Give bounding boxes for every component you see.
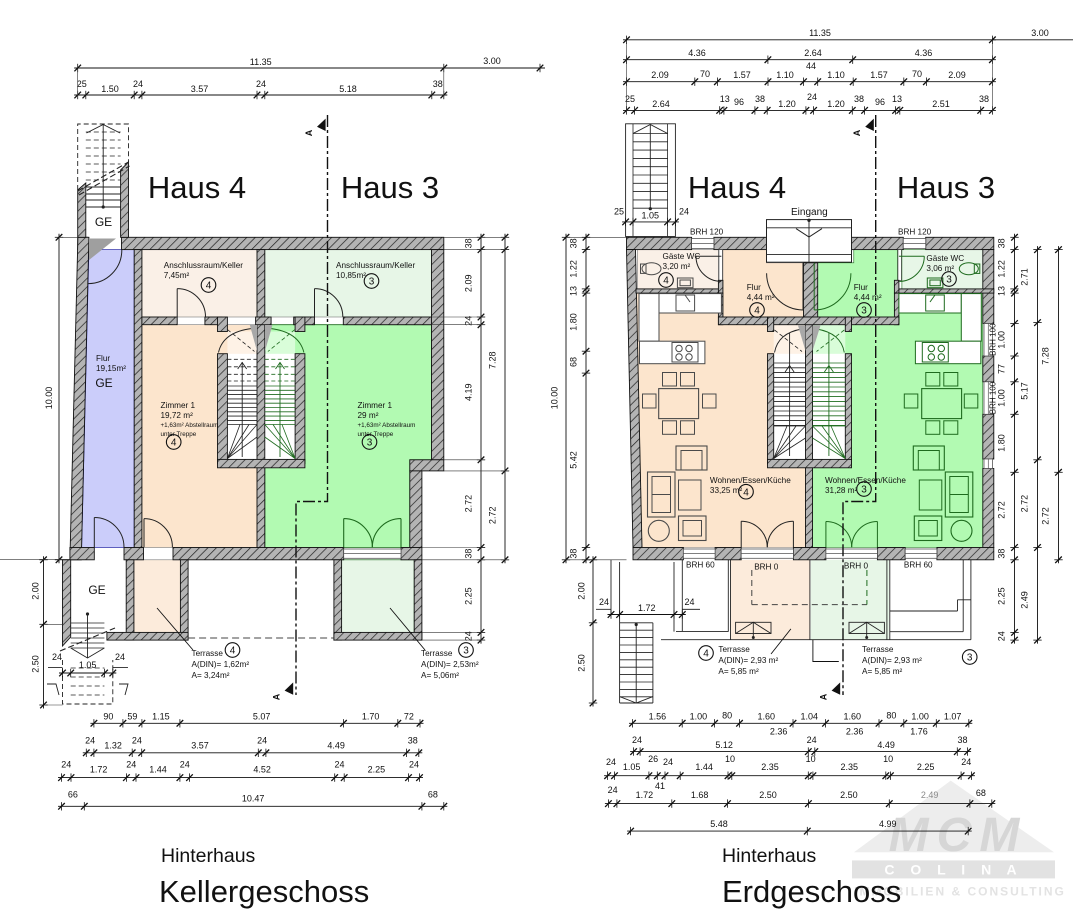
svg-text:2.72: 2.72: [1041, 507, 1051, 525]
svg-text:13: 13: [569, 286, 579, 296]
svg-text:24: 24: [115, 652, 125, 662]
svg-text:1.00: 1.00: [911, 711, 929, 721]
svg-text:2.71: 2.71: [1020, 268, 1030, 286]
svg-text:24: 24: [632, 735, 642, 745]
svg-text:2.72: 2.72: [464, 495, 474, 513]
svg-text:1.07: 1.07: [944, 711, 962, 721]
svg-text:2.09: 2.09: [464, 275, 474, 293]
svg-text:4: 4: [743, 487, 749, 498]
svg-text:10: 10: [806, 754, 816, 764]
svg-text:4: 4: [754, 306, 760, 317]
svg-text:BRH 60: BRH 60: [904, 561, 933, 570]
svg-text:7.28: 7.28: [1041, 347, 1051, 365]
svg-text:4.49: 4.49: [327, 740, 345, 750]
svg-text:1.05: 1.05: [623, 762, 641, 772]
svg-text:10.00: 10.00: [550, 387, 560, 410]
svg-text:2.00: 2.00: [31, 582, 41, 600]
svg-text:10,85m²: 10,85m²: [336, 271, 366, 280]
svg-text:GE: GE: [95, 215, 112, 229]
svg-text:1.68: 1.68: [691, 790, 709, 800]
svg-text:Hinterhaus: Hinterhaus: [161, 845, 256, 867]
svg-text:66: 66: [68, 789, 78, 799]
svg-text:38: 38: [957, 735, 967, 745]
svg-text:38: 38: [464, 549, 474, 559]
svg-text:24: 24: [608, 785, 618, 795]
svg-text:68: 68: [976, 788, 986, 798]
svg-text:80: 80: [886, 710, 896, 720]
svg-text:1.56: 1.56: [649, 711, 667, 721]
svg-text:1.22: 1.22: [569, 260, 579, 278]
svg-text:3.00: 3.00: [1031, 28, 1049, 38]
svg-text:2.50: 2.50: [31, 655, 41, 673]
svg-text:38: 38: [755, 94, 765, 104]
svg-text:2.64: 2.64: [652, 99, 670, 109]
svg-text:Zimmer 1: Zimmer 1: [358, 401, 393, 410]
svg-text:GE: GE: [95, 376, 112, 390]
svg-text:GE: GE: [88, 583, 105, 597]
svg-text:26: 26: [648, 754, 658, 764]
svg-text:4.52: 4.52: [253, 765, 271, 775]
svg-text:19,72 m²: 19,72 m²: [161, 411, 194, 420]
svg-text:80: 80: [722, 710, 732, 720]
svg-text:24: 24: [679, 206, 689, 216]
svg-text:1.44: 1.44: [149, 765, 167, 775]
svg-text:38: 38: [464, 238, 474, 248]
svg-text:Haus 4: Haus 4: [688, 170, 786, 205]
svg-text:1.20: 1.20: [827, 99, 845, 109]
svg-text:Gäste WC: Gäste WC: [926, 254, 964, 263]
svg-text:2.25: 2.25: [997, 587, 1007, 605]
svg-text:Flur: Flur: [854, 283, 868, 292]
svg-text:24: 24: [997, 631, 1007, 641]
svg-text:A(DIN)= 1,62m²: A(DIN)= 1,62m²: [192, 660, 250, 669]
svg-text:1.60: 1.60: [844, 711, 862, 721]
svg-text:3.00: 3.00: [483, 56, 501, 66]
svg-text:38: 38: [997, 549, 1007, 559]
svg-text:1.22: 1.22: [997, 260, 1007, 278]
svg-text:2.64: 2.64: [804, 48, 822, 58]
svg-text:+1,63m² Abstellraum: +1,63m² Abstellraum: [358, 422, 416, 429]
svg-text:38: 38: [979, 94, 989, 104]
svg-text:BRH 0: BRH 0: [754, 563, 779, 572]
svg-text:1.80: 1.80: [997, 434, 1007, 452]
svg-text:2.35: 2.35: [841, 762, 859, 772]
svg-text:Eingang: Eingang: [791, 207, 828, 218]
svg-text:1.00: 1.00: [997, 331, 1007, 349]
svg-text:24: 24: [334, 760, 344, 770]
svg-text:Erdgeschoss: Erdgeschoss: [722, 874, 901, 909]
svg-text:3.57: 3.57: [191, 740, 209, 750]
svg-text:24: 24: [52, 652, 62, 662]
svg-text:A(DIN)= 2,93 m²: A(DIN)= 2,93 m²: [718, 656, 778, 665]
svg-text:1.44: 1.44: [695, 762, 713, 772]
svg-text:Hinterhaus: Hinterhaus: [722, 845, 817, 867]
svg-text:68: 68: [569, 357, 579, 367]
svg-text:Haus 3: Haus 3: [341, 170, 439, 205]
svg-text:BRH 120: BRH 120: [898, 228, 932, 237]
svg-text:1.72: 1.72: [90, 765, 108, 775]
svg-text:4.49: 4.49: [877, 740, 895, 750]
svg-text:3: 3: [369, 277, 375, 288]
svg-text:2.36: 2.36: [846, 727, 864, 737]
svg-text:10: 10: [725, 754, 735, 764]
svg-text:5.42: 5.42: [569, 451, 579, 469]
svg-text:1.72: 1.72: [638, 603, 656, 613]
svg-text:+1,63m² Abstellraum: +1,63m² Abstellraum: [161, 422, 219, 429]
svg-text:unter Treppe: unter Treppe: [358, 431, 394, 438]
svg-text:4,44 m²: 4,44 m²: [747, 293, 775, 302]
svg-text:24: 24: [61, 760, 71, 770]
svg-text:1.05: 1.05: [642, 210, 660, 220]
svg-text:2.51: 2.51: [932, 99, 950, 109]
svg-text:13: 13: [892, 94, 902, 104]
svg-text:1.50: 1.50: [101, 84, 119, 94]
svg-text:24: 24: [180, 760, 190, 770]
svg-text:5.07: 5.07: [253, 711, 271, 721]
svg-text:Zimmer 1: Zimmer 1: [161, 401, 196, 410]
svg-text:1.76: 1.76: [910, 727, 928, 737]
svg-text:4.36: 4.36: [915, 48, 933, 58]
svg-text:41: 41: [655, 781, 665, 791]
svg-text:11.35: 11.35: [250, 57, 272, 67]
svg-text:2.49: 2.49: [1020, 591, 1030, 609]
svg-text:2.72: 2.72: [1020, 495, 1030, 513]
svg-text:Kellergeschoss: Kellergeschoss: [159, 874, 369, 909]
svg-text:2.50: 2.50: [577, 654, 587, 672]
svg-text:70: 70: [700, 69, 710, 79]
svg-text:2.25: 2.25: [368, 765, 386, 775]
svg-text:MCM: MCM: [889, 809, 1028, 862]
svg-text:Haus 3: Haus 3: [897, 170, 995, 205]
svg-text:2.35: 2.35: [761, 762, 779, 772]
svg-text:3: 3: [946, 275, 952, 286]
svg-text:24: 24: [599, 597, 609, 607]
svg-text:33,25 m²: 33,25 m²: [710, 486, 743, 495]
svg-text:2.25: 2.25: [464, 587, 474, 605]
svg-text:24: 24: [256, 79, 266, 89]
svg-text:1.70: 1.70: [362, 711, 380, 721]
svg-text:A: A: [819, 693, 829, 700]
svg-text:1.15: 1.15: [152, 711, 170, 721]
svg-text:24: 24: [126, 760, 136, 770]
svg-text:10.00: 10.00: [44, 387, 54, 410]
svg-text:4.36: 4.36: [688, 48, 706, 58]
svg-text:4.19: 4.19: [464, 383, 474, 401]
svg-text:1.10: 1.10: [776, 70, 794, 80]
svg-text:38: 38: [433, 79, 443, 89]
svg-text:24: 24: [257, 735, 267, 745]
svg-text:1.05: 1.05: [79, 660, 97, 670]
svg-text:38: 38: [569, 549, 579, 559]
svg-text:C O L I N A: C O L I N A: [884, 862, 1022, 878]
svg-text:3: 3: [967, 653, 973, 664]
svg-text:2.09: 2.09: [948, 70, 966, 80]
svg-text:1.10: 1.10: [827, 70, 845, 80]
svg-text:24: 24: [807, 92, 817, 102]
svg-text:5.17: 5.17: [1020, 382, 1030, 400]
svg-text:2.36: 2.36: [770, 727, 788, 737]
svg-text:2.72: 2.72: [488, 507, 498, 525]
svg-text:Terrasse: Terrasse: [192, 649, 224, 658]
svg-text:Terrasse: Terrasse: [421, 649, 453, 658]
svg-text:4.99: 4.99: [879, 819, 897, 829]
svg-text:1.57: 1.57: [733, 70, 751, 80]
svg-text:70: 70: [912, 69, 922, 79]
svg-text:Haus 4: Haus 4: [148, 170, 246, 205]
svg-text:24: 24: [606, 757, 616, 767]
svg-text:3: 3: [463, 646, 469, 657]
svg-text:A= 5,06m²: A= 5,06m²: [421, 671, 459, 680]
svg-text:38: 38: [569, 238, 579, 248]
svg-text:3: 3: [861, 306, 867, 317]
svg-text:2.50: 2.50: [759, 790, 777, 800]
svg-text:3.57: 3.57: [191, 84, 209, 94]
svg-text:A: A: [304, 129, 314, 136]
svg-text:5.18: 5.18: [339, 84, 357, 94]
svg-text:4: 4: [171, 438, 177, 449]
svg-text:96: 96: [734, 97, 744, 107]
svg-text:Wohnen/Essen/Küche: Wohnen/Essen/Küche: [710, 476, 791, 485]
svg-text:24: 24: [409, 760, 419, 770]
svg-text:38: 38: [408, 735, 418, 745]
svg-text:2.25: 2.25: [917, 762, 935, 772]
svg-text:A(DIN)= 2,93 m²: A(DIN)= 2,93 m²: [862, 656, 922, 665]
svg-text:Anschlussraum/Keller: Anschlussraum/Keller: [164, 261, 243, 270]
svg-text:1.60: 1.60: [758, 711, 776, 721]
svg-text:Gäste WC: Gäste WC: [663, 252, 701, 261]
svg-text:2.00: 2.00: [577, 582, 587, 600]
svg-text:24: 24: [85, 735, 95, 745]
svg-text:Anschlussraum/Keller: Anschlussraum/Keller: [336, 261, 415, 270]
svg-text:A: A: [272, 693, 282, 700]
svg-text:5.12: 5.12: [715, 740, 733, 750]
svg-text:13: 13: [720, 94, 730, 104]
svg-text:44: 44: [806, 61, 816, 71]
svg-text:BRH 60: BRH 60: [686, 561, 715, 570]
svg-text:24: 24: [132, 735, 142, 745]
svg-text:19,15m²: 19,15m²: [96, 364, 126, 373]
svg-text:77: 77: [997, 364, 1007, 374]
svg-text:2.72: 2.72: [997, 501, 1007, 519]
svg-text:Terrasse: Terrasse: [718, 645, 750, 654]
svg-text:38: 38: [997, 238, 1007, 248]
svg-text:68: 68: [428, 789, 438, 799]
svg-text:2.09: 2.09: [651, 70, 669, 80]
svg-text:25: 25: [614, 206, 624, 216]
svg-text:31,28 m²: 31,28 m²: [825, 486, 858, 495]
svg-text:BRH 120: BRH 120: [690, 228, 724, 237]
svg-text:A(DIN)= 2,53m²: A(DIN)= 2,53m²: [421, 660, 479, 669]
svg-text:4: 4: [663, 276, 669, 287]
svg-text:11.35: 11.35: [809, 28, 831, 38]
svg-text:A= 5,85 m²: A= 5,85 m²: [862, 667, 903, 676]
svg-text:24: 24: [961, 757, 971, 767]
svg-text:A= 5,85 m²: A= 5,85 m²: [718, 667, 759, 676]
svg-text:10: 10: [883, 754, 893, 764]
svg-text:72: 72: [404, 711, 414, 721]
svg-text:25: 25: [77, 79, 87, 89]
svg-text:13: 13: [997, 286, 1007, 296]
svg-text:5.48: 5.48: [710, 819, 728, 829]
svg-text:Terrasse: Terrasse: [862, 645, 894, 654]
svg-text:90: 90: [103, 711, 113, 721]
svg-text:1.20: 1.20: [778, 99, 796, 109]
svg-text:BRH 0: BRH 0: [844, 562, 869, 571]
svg-text:7,45m²: 7,45m²: [164, 271, 190, 280]
svg-text:Flur: Flur: [747, 283, 761, 292]
svg-text:4: 4: [230, 646, 236, 657]
svg-text:1.04: 1.04: [801, 711, 819, 721]
svg-text:A= 3,24m²: A= 3,24m²: [192, 671, 230, 680]
svg-text:3: 3: [861, 485, 867, 496]
svg-text:24: 24: [133, 79, 143, 89]
svg-text:29 m²: 29 m²: [358, 411, 379, 420]
svg-text:4: 4: [703, 649, 709, 660]
svg-text:24: 24: [663, 757, 673, 767]
svg-text:10.47: 10.47: [242, 793, 265, 803]
svg-text:A: A: [852, 129, 862, 136]
svg-text:1.80: 1.80: [569, 313, 579, 331]
svg-text:96: 96: [875, 97, 885, 107]
svg-text:4,44 m²: 4,44 m²: [854, 293, 882, 302]
svg-text:2.49: 2.49: [921, 790, 939, 800]
svg-text:1.57: 1.57: [870, 70, 888, 80]
svg-text:1.00: 1.00: [997, 389, 1007, 407]
svg-text:1.32: 1.32: [104, 740, 122, 750]
svg-text:Flur: Flur: [96, 354, 110, 363]
svg-text:7.28: 7.28: [488, 351, 498, 369]
svg-text:24: 24: [684, 597, 694, 607]
svg-text:38: 38: [854, 94, 864, 104]
svg-text:59: 59: [127, 711, 137, 721]
svg-text:3,20 m²: 3,20 m²: [663, 262, 691, 271]
svg-text:24: 24: [807, 735, 817, 745]
svg-text:1.72: 1.72: [636, 790, 654, 800]
svg-text:2.50: 2.50: [840, 790, 858, 800]
svg-text:3: 3: [367, 438, 373, 449]
svg-text:4: 4: [206, 281, 212, 292]
svg-text:1.00: 1.00: [690, 711, 708, 721]
